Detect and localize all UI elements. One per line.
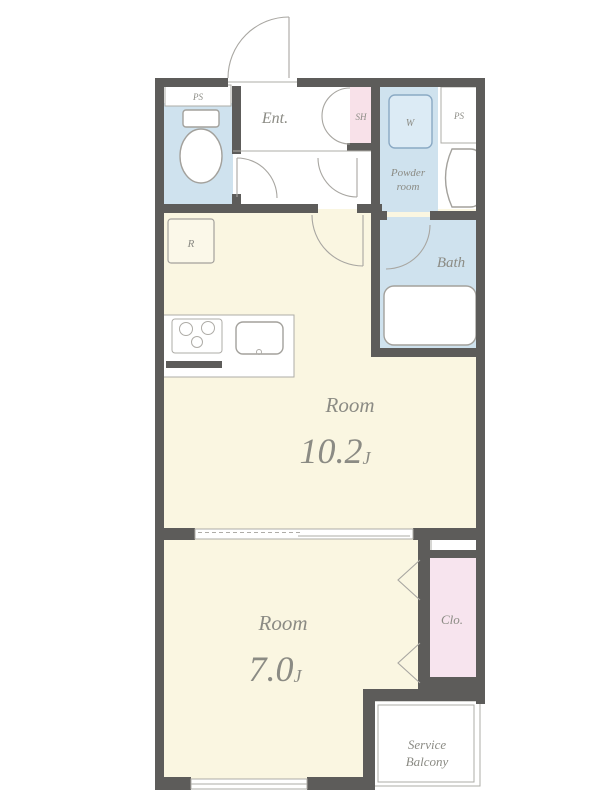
- toilet-tank: [183, 110, 219, 127]
- bedroom-size-value: 7.0: [249, 649, 294, 689]
- wall-bath-left: [371, 211, 380, 357]
- shoebox-door-arc-top: [322, 88, 350, 116]
- entrance-door-arc: [228, 17, 289, 78]
- wall-balcony-left: [363, 689, 375, 790]
- balcony-label-line2: Balcony: [406, 754, 449, 769]
- wall-closet-left: [418, 540, 430, 689]
- kitchen-sink-icon: [236, 322, 283, 355]
- living-room-size: 10.2J: [300, 431, 372, 471]
- wall-right: [476, 78, 485, 704]
- shoe-box-label: SH: [356, 112, 368, 122]
- bedroom-name: Room: [258, 611, 308, 635]
- wall-left: [155, 78, 164, 790]
- closet-top-gap: [431, 539, 477, 551]
- wall-toilet-right-upper: [232, 86, 241, 154]
- closet-label: Clo.: [441, 612, 463, 627]
- toilet-icon: [180, 110, 222, 183]
- counter-base-wall: [166, 361, 222, 368]
- wall-bath-top-right: [430, 211, 485, 220]
- living-room-size-unit: J: [363, 448, 372, 468]
- bedroom-size-unit: J: [294, 666, 303, 686]
- wall-shoebox-cap: [347, 143, 375, 151]
- floorplan-svg: PS Ent. SH W PS Powder room Bath R Room …: [0, 0, 600, 800]
- wall-closet-top-bar: [428, 550, 485, 558]
- powder-room-label-line1: Powder: [390, 167, 426, 179]
- powder-door-arc: [318, 158, 357, 197]
- wall-bath-bottom: [371, 348, 485, 357]
- toilet-door-arc: [237, 158, 277, 198]
- wall-top-left: [155, 78, 228, 87]
- wall-closet-bottom: [418, 677, 485, 691]
- living-room-name: Room: [325, 393, 375, 417]
- shoebox-door-arc-bottom: [322, 116, 350, 144]
- sliding-door-track: [195, 529, 413, 539]
- wall-powder-left: [371, 86, 380, 215]
- kitchen-counter: [163, 315, 294, 377]
- refrigerator-label: R: [187, 238, 195, 250]
- bathtub-icon: [384, 286, 476, 345]
- ps-right-label: PS: [453, 111, 464, 121]
- balcony-label-line1: Service: [408, 737, 446, 752]
- powder-room-label-line2: room: [397, 181, 420, 193]
- wall-room-divider-left: [163, 528, 195, 540]
- bath-label: Bath: [437, 255, 465, 271]
- wall-balcony-top: [363, 689, 485, 701]
- wall-hall-ldk-left: [163, 204, 318, 213]
- floorplan-image: PS Ent. SH W PS Powder room Bath R Room …: [0, 0, 600, 800]
- entrance-label: Ent.: [261, 110, 288, 127]
- ps-left-label: PS: [192, 92, 203, 102]
- toilet-bowl: [180, 129, 222, 183]
- living-room-size-value: 10.2: [300, 431, 363, 471]
- washbasin-icon: [446, 149, 480, 207]
- wall-room-divider-right: [413, 528, 485, 540]
- wall-bottom-left: [155, 777, 191, 790]
- wall-top-right: [297, 78, 485, 87]
